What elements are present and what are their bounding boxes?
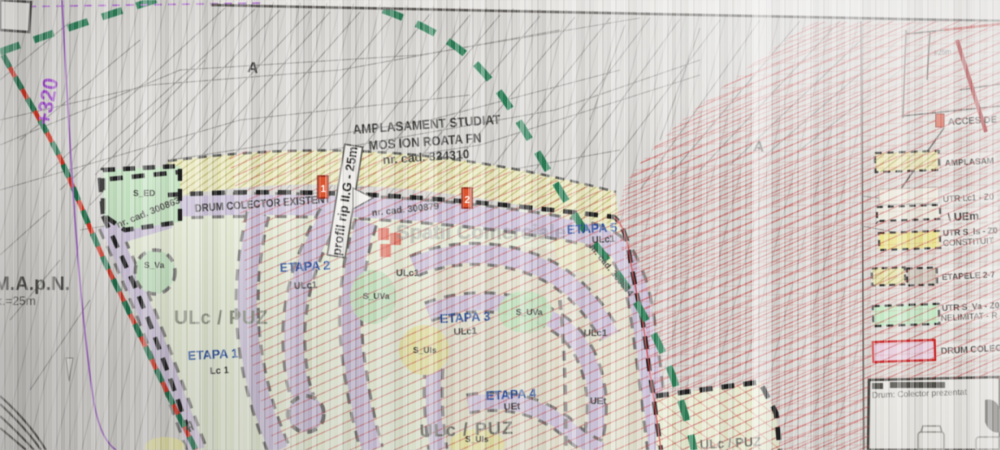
svg-text:ETAPA 3: ETAPA 3	[439, 309, 490, 326]
svg-text:ETAPA 1: ETAPA 1	[187, 346, 238, 363]
svg-text:A: A	[247, 59, 260, 77]
svg-text:ULc1: ULc1	[396, 268, 420, 279]
svg-text:M.A.p.N.: M.A.p.N.	[0, 274, 70, 295]
svg-text:x.=25m: x.=25m	[0, 294, 36, 308]
svg-text:ULc1: ULc1	[294, 280, 318, 292]
svg-text:1: 1	[321, 184, 327, 195]
svg-text:S_ED: S_ED	[133, 188, 155, 198]
svg-text:S_UVa: S_UVa	[516, 307, 543, 317]
svg-text:ETAPA 2: ETAPA 2	[279, 258, 330, 275]
svg-text:S_UIs: S_UIs	[413, 345, 437, 355]
svg-text:S_UVa: S_UVa	[363, 291, 390, 301]
svg-text:UEt: UEt	[590, 396, 607, 407]
svg-text:2: 2	[465, 195, 471, 206]
svg-text:ULc / PUZ: ULc / PUZ	[174, 308, 268, 329]
svg-text:A: A	[185, 418, 195, 433]
svg-text:Spatii Comerciale: Spatii Comerciale	[396, 222, 566, 244]
svg-text:Lc 1: Lc 1	[210, 365, 230, 377]
svg-text:ETAPA 4: ETAPA 4	[485, 386, 536, 403]
svg-text:ULc1: ULc1	[584, 328, 608, 339]
svg-text:S_Va: S_Va	[144, 260, 165, 270]
svg-text:ULc1: ULc1	[454, 326, 478, 338]
svg-text:ULc1: ULc1	[592, 234, 616, 246]
svg-text:UEt: UEt	[504, 401, 522, 413]
svg-text:ULc / PUZ: ULc / PUZ	[419, 418, 514, 441]
